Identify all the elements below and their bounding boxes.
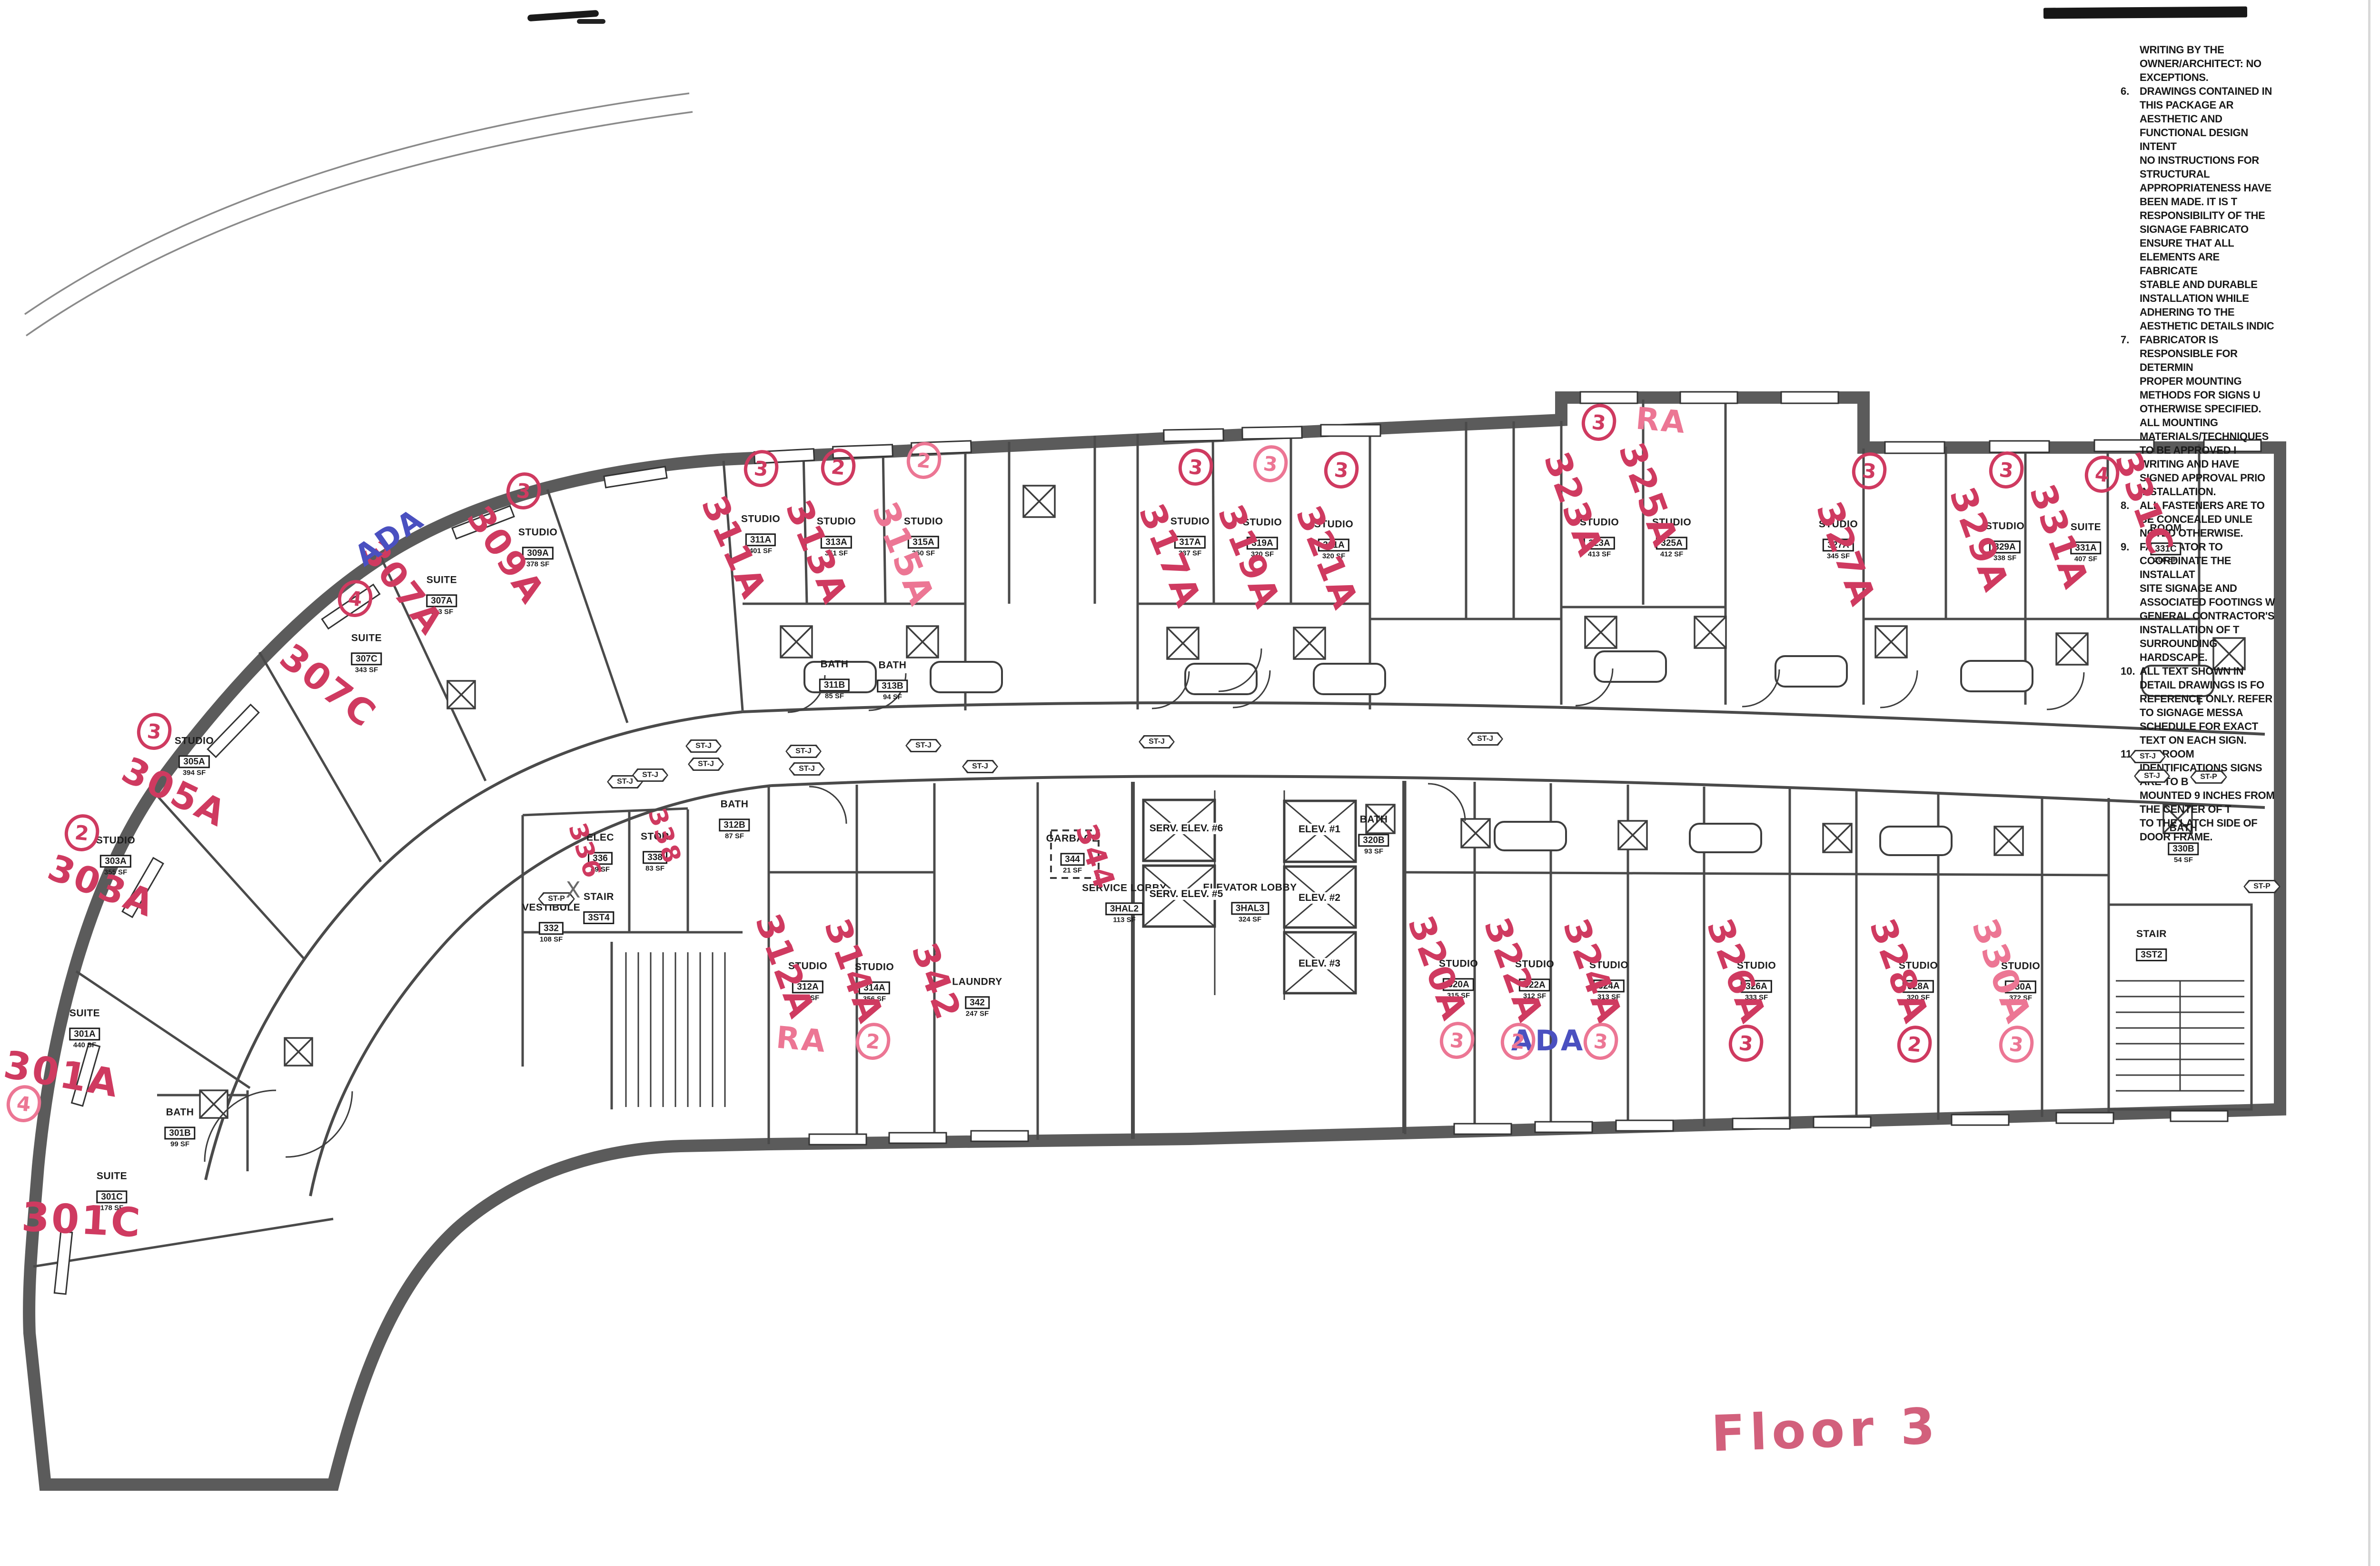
room-type-label: BATH xyxy=(877,660,908,670)
room-area-label: 343 SF xyxy=(351,666,382,673)
room-tag-3ST2: STAIR3ST2 xyxy=(2136,929,2167,962)
circled-number-3: 3 xyxy=(1727,1023,1765,1063)
room-type-label: SUITE xyxy=(96,1171,127,1181)
circled-number-2: 2 xyxy=(854,1021,892,1061)
room-number-box: 3ST4 xyxy=(583,911,614,924)
handwritten-301c: 301C xyxy=(20,1193,143,1246)
circled-number-4: 4 xyxy=(336,578,374,618)
scanned-floor-plan-sheet: WRITING BY THE OWNER/ARCHITECT: NO EXCEP… xyxy=(0,0,2380,1566)
room-type-label: STUDIO xyxy=(518,527,557,537)
room-tag-330B: BATH330B54 SF xyxy=(2168,823,2199,863)
finish-tag-ST-J: ST-J xyxy=(2134,769,2170,783)
handwritten-325a: 325A xyxy=(1611,437,1686,553)
circled-number-3: 3 xyxy=(1987,449,2025,490)
finish-tag-text: ST-P xyxy=(2192,772,2226,782)
room-area-label: 324 SF xyxy=(1203,916,1297,923)
room-tag-320B: BATH320B93 SF xyxy=(1358,814,1389,855)
finish-tag-ST-J: ST-J xyxy=(688,758,724,771)
room-tag-332: VESTIBULE332108 SF xyxy=(522,902,580,943)
room-type-label: STAIR xyxy=(2136,929,2167,939)
finish-tag-text: ST-J xyxy=(907,740,940,751)
circled-number-2: 2 xyxy=(819,447,857,487)
room-area-label: 94 SF xyxy=(877,693,908,700)
circled-number-2: 2 xyxy=(63,812,101,853)
finish-tag-ST-J: ST-J xyxy=(1467,732,1503,746)
circled-number-3: 3 xyxy=(1322,449,1360,490)
circled-number-3: 3 xyxy=(1251,443,1289,484)
room-number-box: 3HAL3 xyxy=(1231,902,1269,915)
room-type-label: STUDIO xyxy=(175,736,214,746)
room-tag-307C: SUITE307C343 SF xyxy=(351,633,382,673)
room-tag-305A: STUDIO305A394 SF xyxy=(175,736,214,776)
handwritten-ra: RA xyxy=(775,1020,829,1059)
finish-tag-text: ST-J xyxy=(2135,771,2169,781)
finish-tag-ST-J: ST-J xyxy=(789,762,825,776)
finish-tag-ST-P: ST-P xyxy=(2190,770,2227,784)
finish-tag-text: ST-J xyxy=(1140,737,1173,747)
room-area-label: 200 SF xyxy=(2150,556,2182,563)
finish-tag-text: ST-J xyxy=(787,746,820,757)
room-type-label: BATH xyxy=(1358,814,1389,824)
elevator-label: ELEV. #1 xyxy=(1296,824,1343,835)
finish-tag-ST-P: ST-P xyxy=(2243,880,2281,893)
room-number-box: 330B xyxy=(2168,842,2199,855)
finish-tag-text: ST-J xyxy=(1468,734,1502,744)
circled-number-3: 3 xyxy=(1580,402,1618,442)
room-area-label: 85 SF xyxy=(819,692,850,699)
circled-number-3: 3 xyxy=(742,448,780,489)
circled-number-2: 2 xyxy=(1895,1024,1934,1064)
finish-tag-text: ST-J xyxy=(687,741,720,751)
room-type-label: BATH xyxy=(164,1107,195,1117)
room-type-label: BATH xyxy=(2168,823,2199,833)
room-tag-301A: SUITE301A440 SF xyxy=(69,1008,100,1048)
room-area-label: 113 SF xyxy=(1082,916,1167,923)
room-type-label: LAUNDRY xyxy=(952,977,1002,987)
handwritten-x: X xyxy=(565,877,583,903)
room-number-box: 301B xyxy=(164,1127,195,1139)
circled-number-2: 2 xyxy=(905,440,943,480)
room-tag-312B: BATH312B87 SF xyxy=(719,799,750,839)
room-number-box: 301A xyxy=(69,1027,100,1040)
room-number-box: 311B xyxy=(819,678,850,691)
elevator-label: ELEV. #3 xyxy=(1296,958,1343,969)
finish-tag-ST-J: ST-J xyxy=(685,739,722,753)
finish-tag-text: ST-J xyxy=(634,770,667,780)
room-number-box: 307C xyxy=(351,652,382,665)
room-area-label: 87 SF xyxy=(719,832,750,839)
finish-tag-ST-J: ST-J xyxy=(785,745,822,758)
finish-tag-text: ST-J xyxy=(689,759,723,769)
circled-number-3: 3 xyxy=(1582,1021,1620,1061)
finish-tag-ST-J: ST-J xyxy=(1139,735,1175,748)
elevator-label: SERV. ELEV. #5 xyxy=(1147,888,1226,900)
finish-tag-text: ST-P xyxy=(2245,881,2279,892)
circled-number-3: 3 xyxy=(1438,1020,1476,1060)
finish-tag-ST-J: ST-J xyxy=(905,739,942,752)
handwritten-331c: 331C xyxy=(2107,447,2182,561)
room-type-label: STUDIO xyxy=(741,514,780,524)
finish-tag-ST-J: ST-J xyxy=(632,768,668,782)
room-tag-301B: BATH301B99 SF xyxy=(164,1107,195,1147)
room-number-box: 342 xyxy=(965,996,990,1009)
room-area-label: 108 SF xyxy=(522,936,580,943)
finish-tag-text: ST-J xyxy=(2131,751,2164,762)
floor-title: Floor 3 xyxy=(1710,1397,1940,1463)
room-type-label: SUITE xyxy=(426,575,457,585)
room-type-label: STUDIO xyxy=(96,835,135,845)
room-number-box: 3HAL2 xyxy=(1105,902,1143,915)
room-area-label: 54 SF xyxy=(2168,856,2199,863)
elevator-label: SERV. ELEV. #6 xyxy=(1147,823,1226,834)
room-type-label: SUITE xyxy=(351,633,382,643)
finish-tag-ST-J: ST-J xyxy=(2130,750,2166,763)
room-type-label: SUITE xyxy=(69,1008,100,1018)
elevator-label: ELEV. #2 xyxy=(1296,892,1343,904)
handwritten-321a: 321A xyxy=(1288,500,1366,616)
room-type-label: BATH xyxy=(719,799,750,809)
room-type-label: BATH xyxy=(819,659,850,669)
room-tag-311B: BATH311B85 SF xyxy=(819,659,850,699)
room-number-box: 312B xyxy=(719,818,750,831)
circled-number-3: 3 xyxy=(135,711,173,751)
room-tag-313B: BATH313B94 SF xyxy=(877,660,908,700)
room-type-label: STAIR xyxy=(583,892,614,902)
room-number-box: 3ST2 xyxy=(2136,948,2167,961)
handwritten-323a: 323A xyxy=(1536,447,1612,562)
handwritten-ra: RA xyxy=(1635,401,1688,440)
room-tag-3ST4: STAIR3ST4 xyxy=(583,892,614,925)
finish-tag-ST-J: ST-J xyxy=(962,760,998,773)
circled-number-3: 3 xyxy=(1177,447,1215,487)
room-area-label: 99 SF xyxy=(164,1140,195,1147)
circled-number-3: 3 xyxy=(1997,1024,2035,1064)
annotation-layer: SUITE301A440 SFSUITE301C178 SFBATH301B99… xyxy=(0,0,2380,1566)
room-number-box: 320B xyxy=(1358,834,1389,847)
finish-tag-text: ST-J xyxy=(790,764,823,774)
finish-tag-text: ST-J xyxy=(963,761,997,772)
circled-number-3: 3 xyxy=(505,470,543,511)
circled-number-3: 3 xyxy=(1850,450,1888,491)
room-number-box: 332 xyxy=(539,922,564,935)
room-area-label: 440 SF xyxy=(69,1041,100,1048)
room-number-box: 313B xyxy=(877,679,908,692)
room-area-label: 93 SF xyxy=(1358,848,1389,855)
room-area-label: 412 SF xyxy=(1652,550,1691,558)
room-number-box: 305A xyxy=(178,755,209,768)
